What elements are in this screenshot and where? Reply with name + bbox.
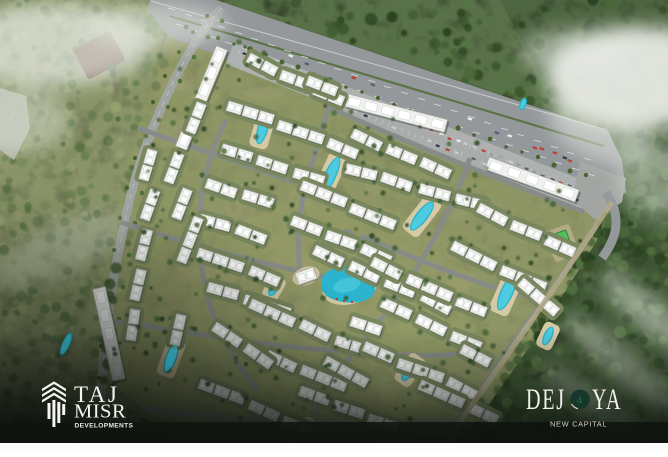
svg-text:DEVELOPMENTS: DEVELOPMENTS bbox=[75, 423, 134, 430]
svg-text:NEW CAPITAL: NEW CAPITAL bbox=[550, 420, 607, 429]
svg-text:MISR: MISR bbox=[74, 401, 126, 423]
svg-text:YA: YA bbox=[592, 382, 622, 416]
svg-text:DEJ: DEJ bbox=[526, 382, 566, 416]
svg-text:4: 4 bbox=[577, 395, 583, 407]
